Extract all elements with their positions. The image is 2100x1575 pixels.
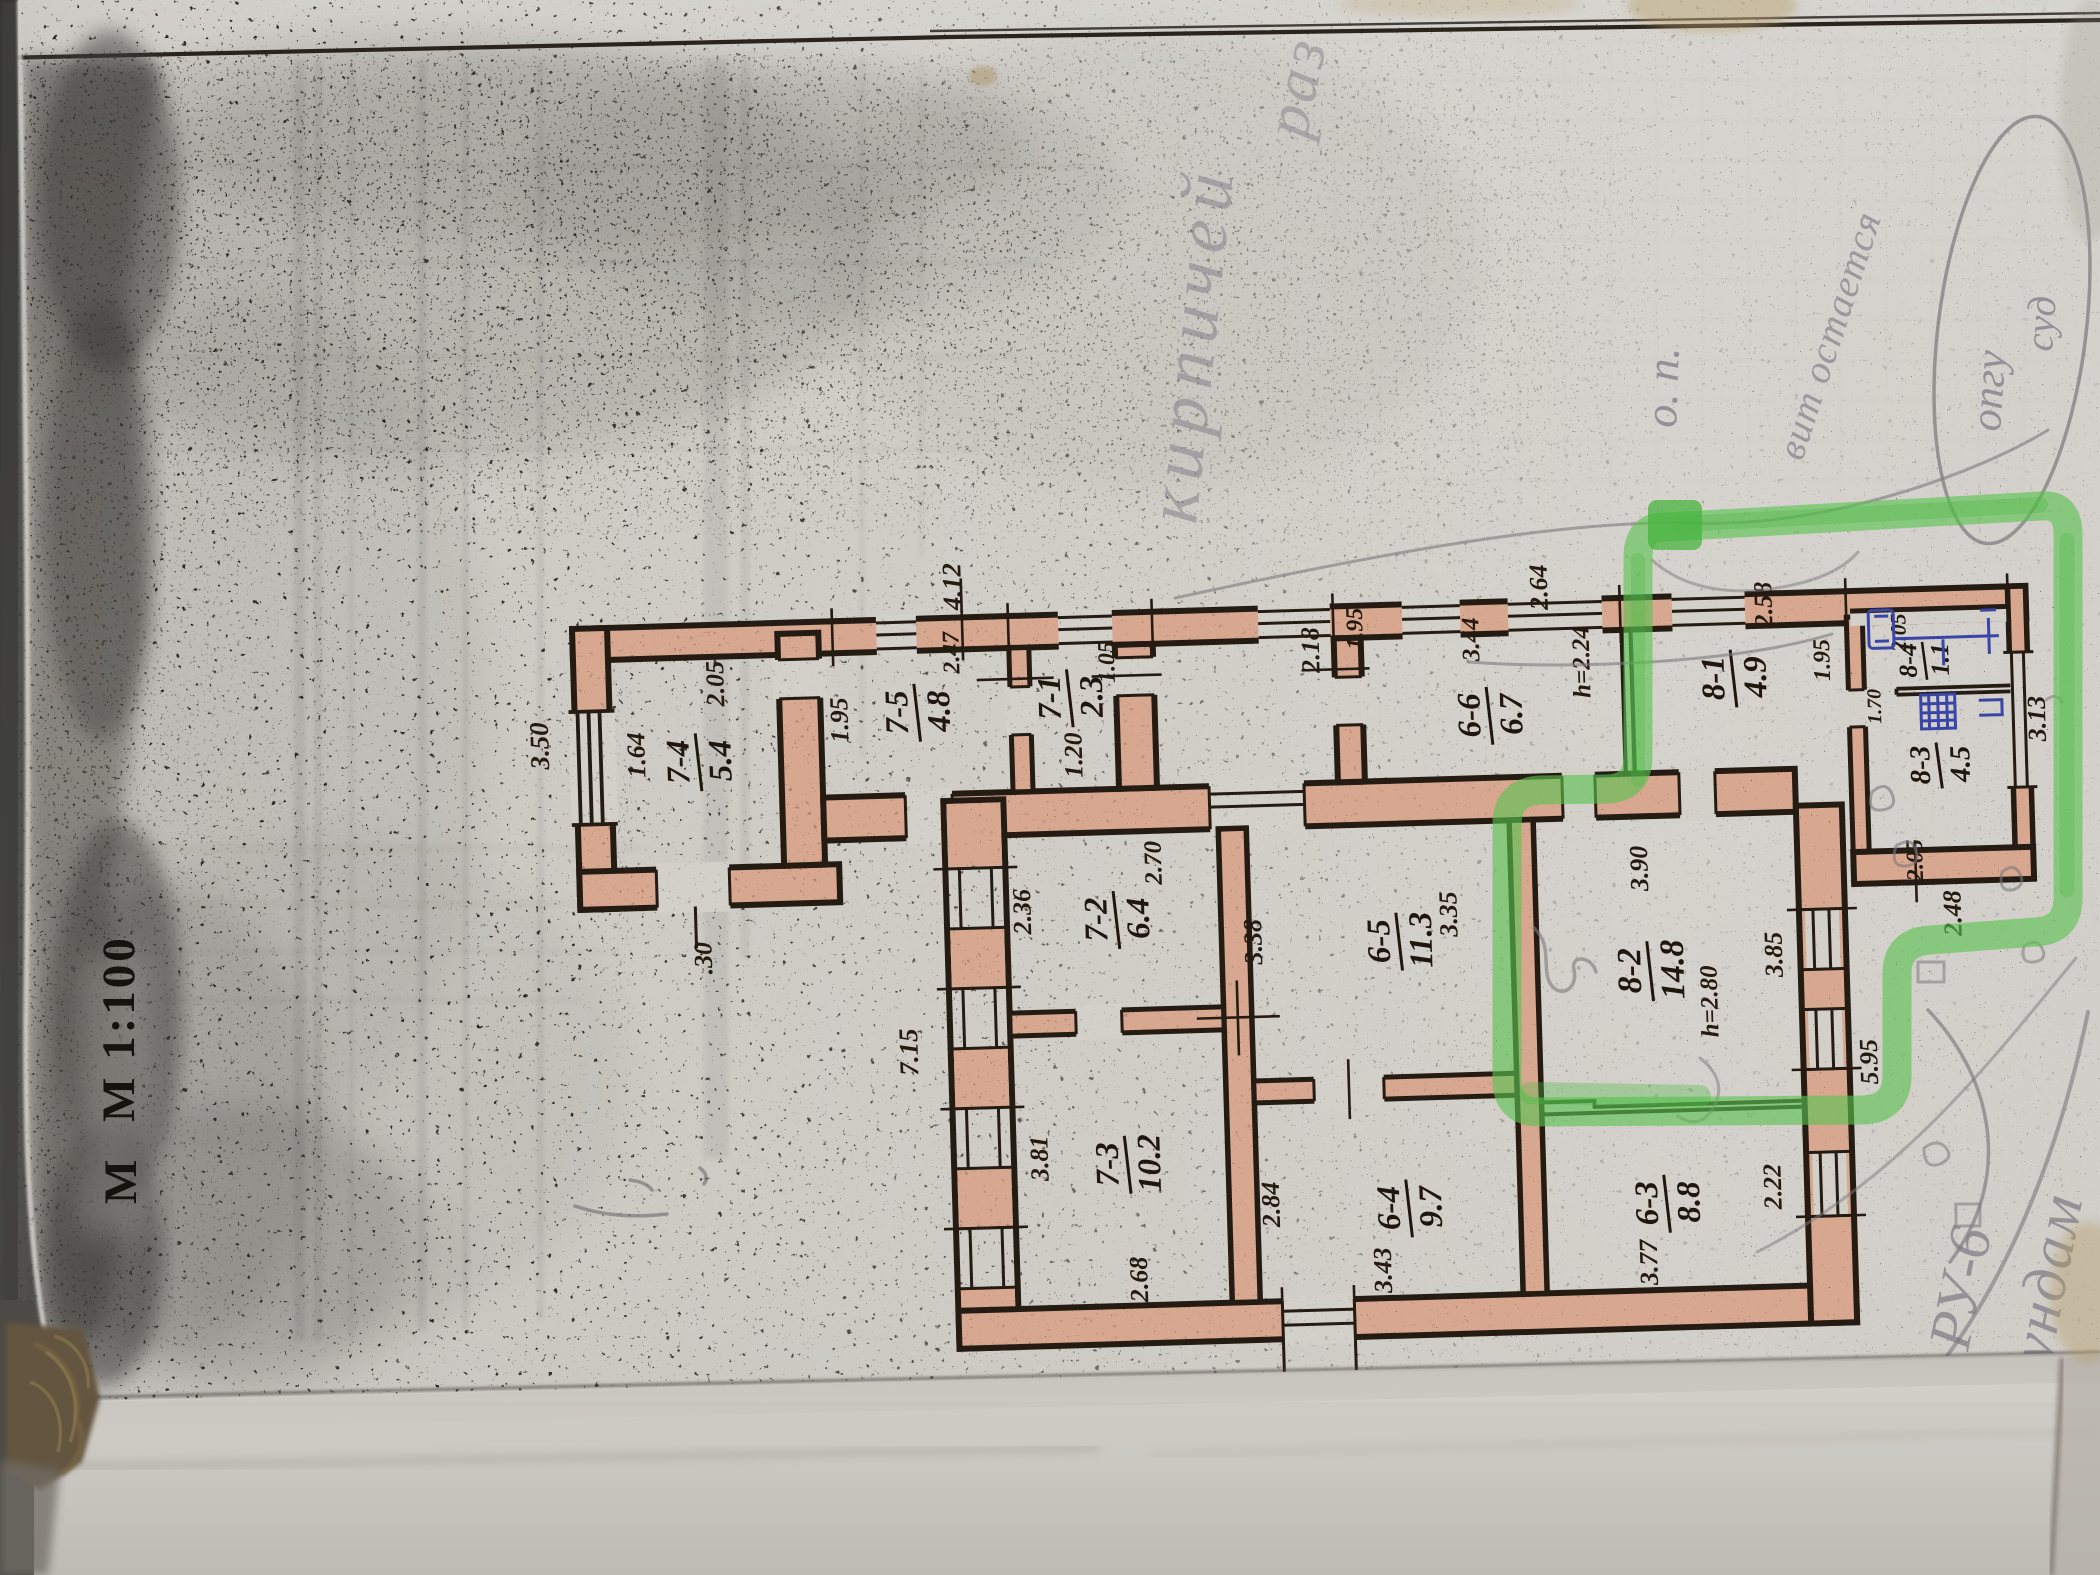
svg-text:М 1:100: М 1:100 (93, 935, 145, 1122)
svg-text:о. п.: о. п. (1635, 346, 1689, 428)
svg-text:М: М (95, 1160, 147, 1204)
svg-text:опгу: опгу (1961, 348, 2016, 432)
svg-text:суд: суд (2016, 294, 2065, 352)
